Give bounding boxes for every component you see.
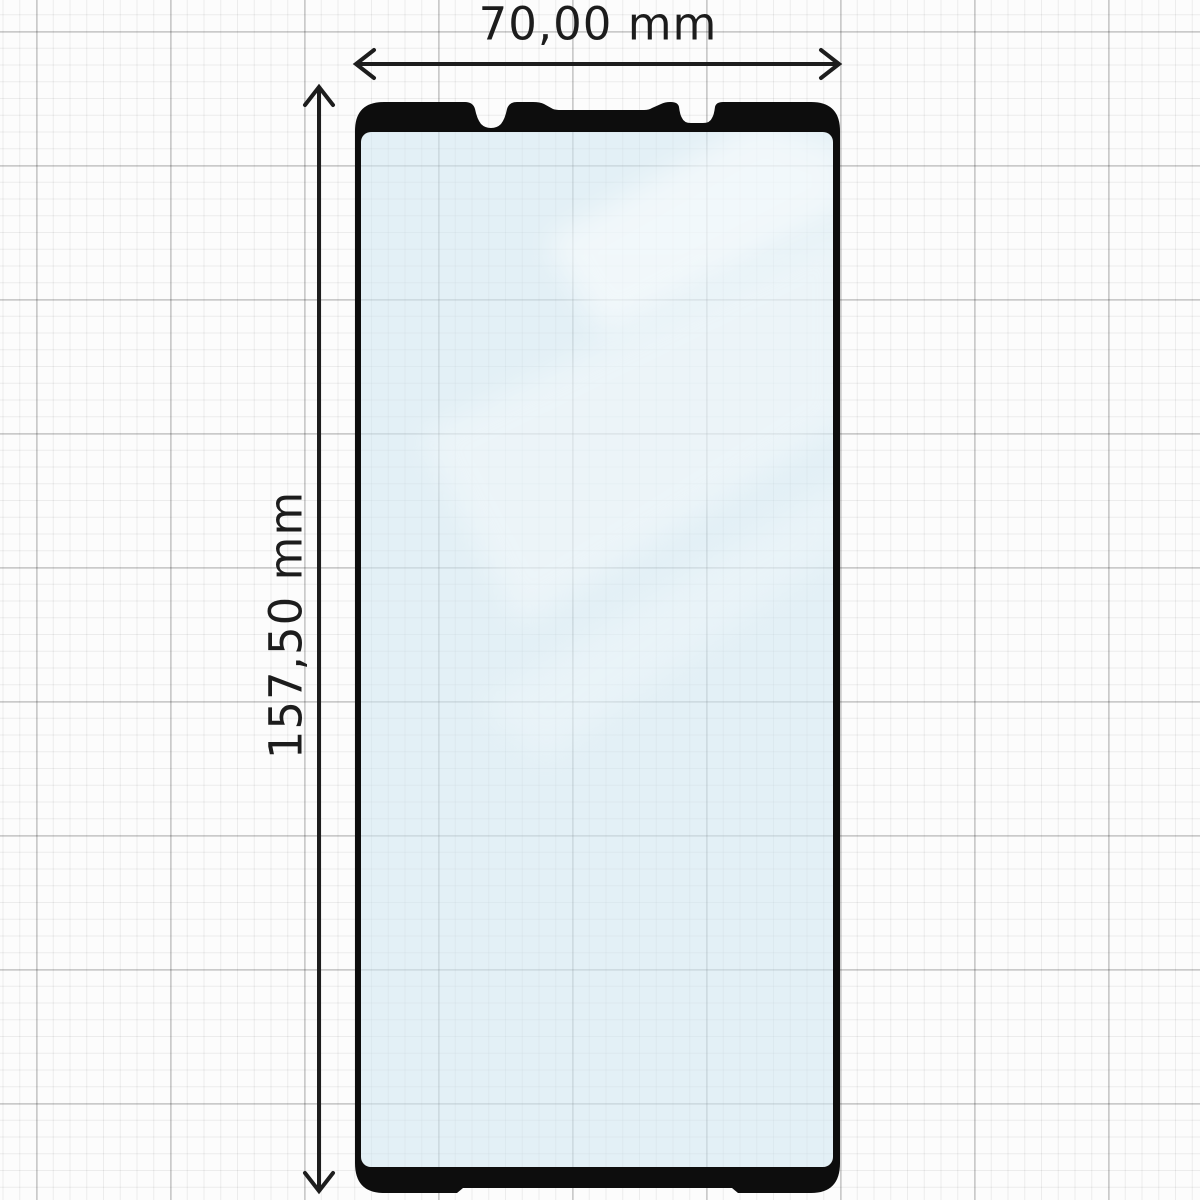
- width-dimension-arrow: [356, 50, 839, 78]
- width-dimension-label: 70,00 mm: [479, 0, 718, 51]
- height-dimension-label: 157,50 mm: [260, 491, 313, 759]
- screen-protector-diagram: [0, 0, 1200, 1200]
- glass-surface: [355, 100, 845, 1195]
- grid-paper-background: 70,00 mm 157,50 mm: [0, 0, 1200, 1200]
